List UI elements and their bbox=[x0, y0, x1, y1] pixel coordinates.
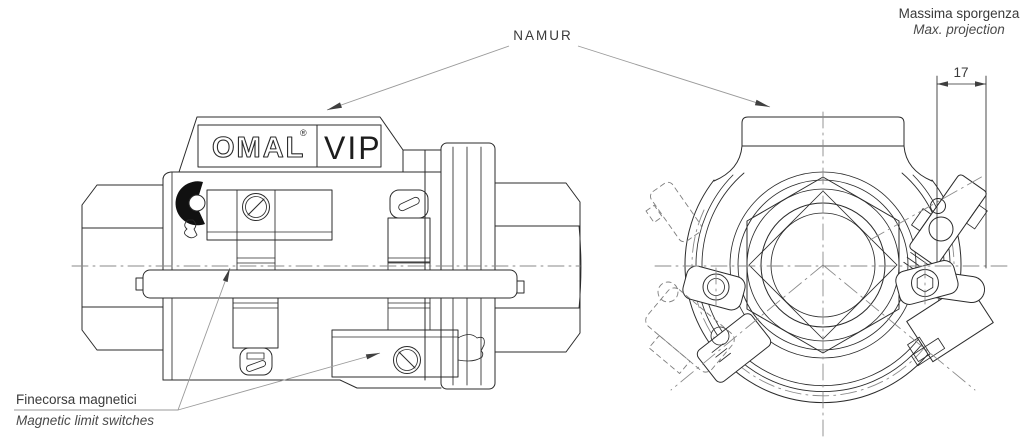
namur-arrow-left bbox=[327, 102, 342, 110]
screw-head-bottom bbox=[394, 347, 421, 374]
brand-logo: OMAL bbox=[212, 132, 305, 164]
limit-switch-column bbox=[388, 190, 430, 330]
limit-switch-label-it: Finecorsa magnetici bbox=[16, 392, 137, 407]
limit-switch-bottom bbox=[332, 330, 484, 377]
retaining-clip bbox=[458, 335, 484, 362]
namur-label: NAMUR bbox=[513, 28, 573, 43]
mounting-bar bbox=[136, 270, 524, 298]
screw-head-top bbox=[243, 194, 270, 221]
side-view: OMAL ® VIP bbox=[72, 117, 581, 389]
actuator-drawing: OMAL ® VIP bbox=[0, 0, 1024, 439]
pipe-end-left bbox=[82, 185, 163, 350]
max-projection-label-en: Max. projection bbox=[913, 22, 1005, 37]
annotations: NAMUR Massima sporgenza Max. projection … bbox=[14, 6, 1020, 428]
rotation-indicator bbox=[176, 181, 205, 237]
namur-arrow-right bbox=[755, 100, 770, 107]
trademark-symbol: ® bbox=[300, 128, 307, 138]
limit-switch-arrow-2 bbox=[366, 353, 380, 359]
switch-lower-left bbox=[695, 311, 773, 384]
max-projection-label-it: Massima sporgenza bbox=[899, 6, 1020, 21]
pipe-end-right bbox=[495, 183, 581, 352]
front-view bbox=[632, 112, 1008, 436]
nameplate: OMAL ® VIP bbox=[179, 117, 403, 172]
series-label: VIP bbox=[324, 130, 382, 166]
dimension-value: 17 bbox=[953, 65, 968, 80]
technical-drawing-canvas: OMAL ® VIP bbox=[0, 0, 1024, 439]
limit-switch-label-en: Magnetic limit switches bbox=[16, 413, 154, 428]
